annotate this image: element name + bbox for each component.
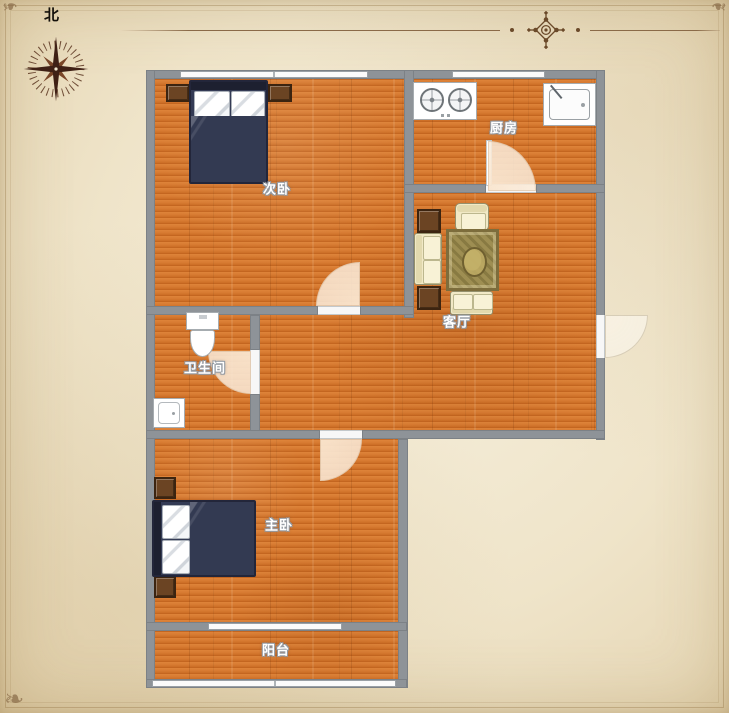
- double-bed-secondary: [189, 80, 268, 184]
- room-label-secondary-bedroom: 次卧: [263, 179, 291, 198]
- wall-middle-right: [362, 430, 605, 439]
- sofa-cushion: [423, 236, 441, 260]
- nightstand: [154, 576, 176, 598]
- stove-knob-icon: [447, 114, 450, 117]
- wall-kitchen-bottom-right: [536, 184, 605, 193]
- toilet-flush-button: [199, 315, 207, 319]
- divider-dot-icon: [576, 28, 580, 32]
- basin-drain: [172, 412, 175, 415]
- burner-icon: [420, 88, 444, 112]
- burner-icon: [448, 88, 472, 112]
- corner-flourish-icon: ❧: [4, 687, 24, 711]
- nightstand: [154, 477, 176, 499]
- area-rug: [446, 229, 499, 291]
- wall-secondary-bedroom-bottom-left: [146, 306, 318, 315]
- loveseat-cushion: [453, 294, 473, 310]
- floral-divider-ornament-icon: [527, 11, 565, 49]
- wall-secondary-bedroom-bottom-right: [360, 306, 414, 315]
- door-threshold-secondary-bedroom: [318, 306, 360, 315]
- door-arc-entry: [605, 315, 648, 358]
- bed-headboard: [191, 82, 266, 90]
- room-label-kitchen: 厨房: [490, 118, 518, 137]
- toilet-tank-icon: [186, 312, 219, 330]
- window-kitchen: [452, 71, 545, 78]
- window-secondary-bedroom: [180, 71, 368, 78]
- door-threshold-bathroom: [250, 350, 260, 394]
- sofa-back: [416, 235, 422, 283]
- divider-rule-left: [120, 30, 500, 31]
- wall-right-upper: [596, 70, 605, 440]
- basin-inner: [158, 402, 180, 424]
- bed-duvet: [191, 116, 266, 182]
- corner-flourish-icon: ❧: [2, 0, 18, 15]
- stove-knob-icon: [441, 114, 444, 117]
- compass-rose-icon: [20, 33, 92, 105]
- armchair-cushion: [461, 213, 486, 230]
- wall-kitchen-bottom-left: [404, 184, 486, 193]
- divider-rule-right: [590, 30, 720, 31]
- sofa-three-seat: [414, 233, 442, 285]
- sofa-cushion: [423, 260, 441, 284]
- nightstand: [268, 84, 292, 102]
- double-bed-master: [152, 500, 256, 577]
- north-label: 北: [44, 4, 59, 25]
- drain-icon: [581, 103, 585, 107]
- corner-flourish-icon: ❧: [711, 0, 727, 15]
- door-threshold-entry: [596, 315, 605, 358]
- window-balcony: [152, 680, 396, 687]
- armchair-back: [457, 205, 487, 212]
- kitchen-sink-icon: [543, 83, 596, 126]
- door-threshold-master-bedroom: [320, 430, 362, 439]
- wall-bathroom-right-upper: [250, 315, 260, 350]
- side-table: [417, 209, 441, 233]
- room-label-balcony: 阳台: [262, 640, 290, 659]
- bed-pillow: [162, 540, 190, 574]
- window-master-balcony: [208, 623, 342, 630]
- bed-pillow: [162, 505, 190, 539]
- stove-icon: [413, 82, 477, 120]
- bathroom-basin-icon: [153, 398, 185, 428]
- bed-duvet: [190, 502, 254, 575]
- room-label-bathroom: 卫生间: [184, 358, 226, 377]
- divider-dot-icon: [510, 28, 514, 32]
- floorplan-canvas: ❧ ❧ ❧ 北: [0, 0, 729, 713]
- side-table: [417, 286, 441, 310]
- rug-medallion: [462, 247, 487, 277]
- nightstand: [166, 84, 190, 102]
- room-label-living-room: 客厅: [443, 312, 471, 331]
- loveseat-cushion: [473, 294, 493, 310]
- wall-master-right: [398, 439, 408, 688]
- wall-middle-left: [146, 430, 320, 439]
- room-label-master-bedroom: 主卧: [265, 515, 293, 534]
- bed-headboard: [154, 502, 161, 575]
- armchair: [455, 203, 489, 231]
